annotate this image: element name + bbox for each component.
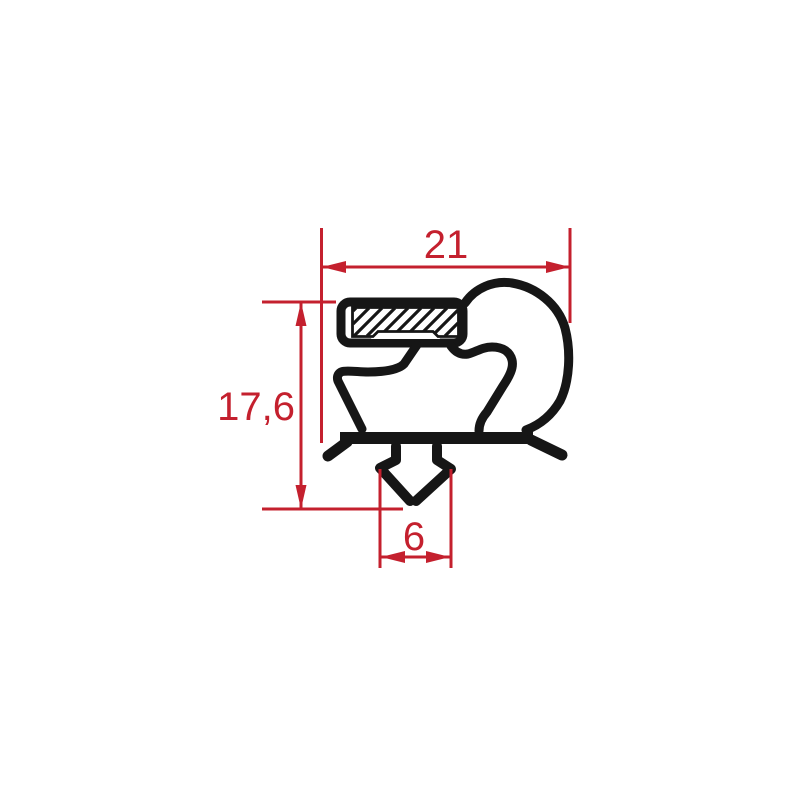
technical-drawing-canvas: 21 17,6 6 [0, 0, 800, 800]
base-left-stub [328, 442, 347, 456]
arrowhead-up-icon [296, 302, 307, 326]
bulb-outline [465, 282, 569, 430]
dimension-label-width: 21 [424, 223, 469, 267]
dart-left-side [380, 446, 410, 501]
arrowhead-down-icon [296, 485, 307, 509]
arrowhead-left-icon [322, 261, 346, 273]
arrowhead-right-icon [426, 551, 450, 563]
bulb-inner-curl [451, 346, 512, 431]
base-right-stub [531, 440, 562, 455]
dimension-label-dart-width: 6 [403, 515, 425, 559]
gasket-profile-drawing: 21 17,6 6 [0, 0, 800, 800]
web-outline [337, 345, 417, 429]
dimension-label-height: 17,6 [217, 385, 295, 429]
dart-right-side [416, 446, 451, 501]
arrowhead-right-icon [546, 261, 570, 273]
arrowhead-left-icon [381, 551, 405, 563]
gasket-profile [328, 282, 569, 501]
